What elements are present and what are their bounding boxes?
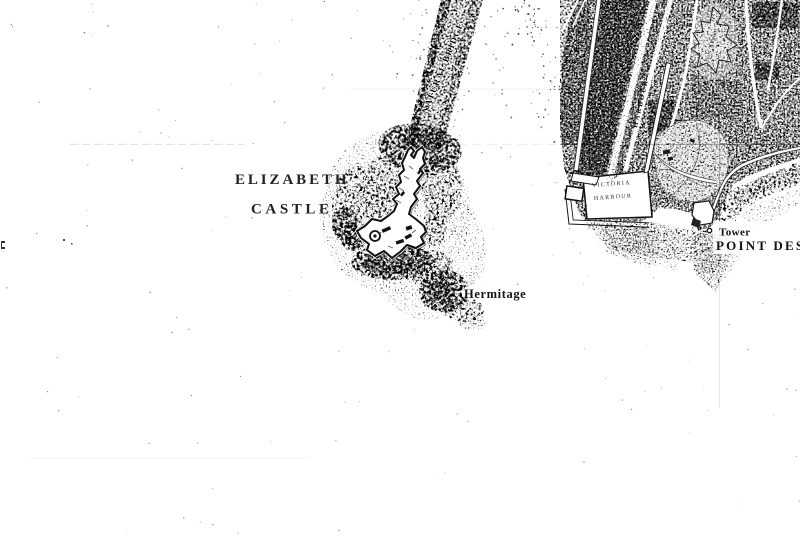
svg-text:Hermitage: Hermitage (464, 287, 526, 301)
svg-text:Tower: Tower (719, 227, 751, 239)
svg-text:ELIZABETH: ELIZABETH (235, 172, 349, 188)
svg-text:POINT DES P: POINT DES P (716, 238, 800, 253)
svg-text:CASTLE: CASTLE (251, 202, 333, 218)
